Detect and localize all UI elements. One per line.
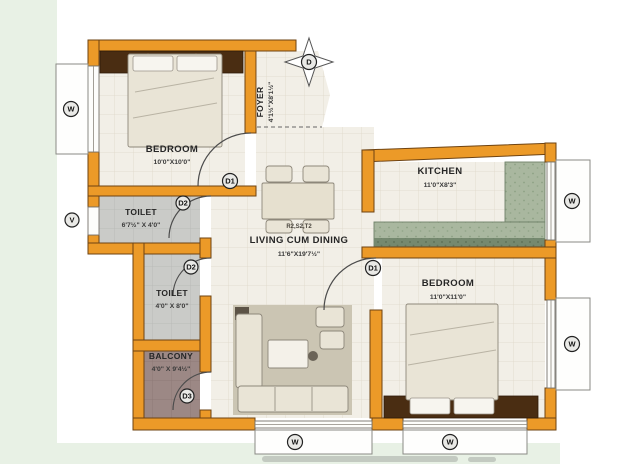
marker-letter: V	[69, 216, 74, 225]
wall-segment	[88, 152, 99, 207]
door-marker-toilet-2: D2	[184, 260, 198, 274]
door-marker-bedroom-1: D1	[223, 174, 238, 189]
wall-segment	[200, 238, 211, 258]
sofa-icon	[238, 386, 348, 412]
wall-segment	[362, 247, 556, 258]
armchair-icon	[316, 307, 344, 327]
counter-front-band	[374, 238, 545, 247]
chair-icon	[303, 166, 329, 182]
dining-table-icon	[262, 183, 334, 219]
main-door-marker: D	[302, 55, 317, 70]
window-box	[255, 430, 372, 454]
armchair-icon	[320, 331, 344, 349]
coffee-table-icon	[268, 340, 308, 368]
window-marker: W	[288, 435, 303, 450]
chair-icon	[266, 166, 292, 182]
label-living: LIVING CUM DINING	[250, 235, 349, 246]
label-toilet-2: TOILET	[156, 288, 188, 298]
window-marker: W	[443, 435, 458, 450]
dims-bedroom-1: 10'0"X10'0"	[154, 159, 191, 166]
label-bedroom-2: BEDROOM	[422, 278, 474, 289]
floor-plan: W W W W W V D D1	[0, 0, 644, 464]
window-box	[403, 430, 527, 454]
window-marker: W	[64, 102, 79, 117]
wall-segment	[200, 410, 211, 418]
door-marker-balcony: D3	[180, 389, 194, 403]
dims-bedroom-2: 11'0"X11'0"	[430, 294, 466, 301]
marker-letter: W	[568, 197, 576, 206]
counter-right	[505, 162, 545, 222]
pillow-icon	[410, 398, 450, 414]
dims-balcony: 4'0" X 9'4½"	[152, 365, 191, 373]
wall-segment	[88, 243, 211, 254]
marker-letter: W	[291, 438, 299, 447]
wall-segment	[372, 418, 403, 430]
wall-segment	[527, 418, 556, 430]
window-marker: W	[565, 194, 580, 209]
cutoff-caption-smudge	[468, 457, 496, 462]
pillow-icon	[177, 56, 217, 71]
door-marker-bedroom-2: D1	[366, 261, 381, 276]
label-foyer: FOYER	[255, 87, 265, 118]
door-marker-toilet-1: D2	[176, 196, 190, 210]
label-balcony: BALCONY	[149, 351, 193, 361]
pillow-icon	[454, 398, 494, 414]
marker-letter: D3	[182, 392, 192, 401]
wall-segment	[88, 40, 296, 51]
label-toilet-1: TOILET	[125, 207, 157, 217]
wall-segment	[545, 143, 556, 162]
label-kitchen: KITCHEN	[417, 166, 462, 177]
marker-letter: D1	[368, 264, 378, 273]
window-marker: W	[565, 337, 580, 352]
dims-kitchen: 11'0"X8'3"	[424, 182, 457, 189]
pillow-icon	[133, 56, 173, 71]
dims-foyer: 4'1½"X8'1½"	[267, 82, 275, 123]
wall-segment	[133, 243, 144, 430]
dims-toilet-2: 4'0" X 8'0"	[155, 303, 188, 310]
wall-segment	[200, 296, 211, 372]
ventilator-glazing	[88, 207, 99, 235]
ventilator-marker: V	[65, 213, 79, 227]
marker-letter: W	[446, 438, 454, 447]
stool-icon	[308, 351, 318, 361]
marker-letter: D2	[178, 199, 188, 208]
wall-segment	[133, 418, 255, 430]
marker-letter: D	[306, 58, 312, 67]
floorplan-page: W W W W W V D D1	[0, 0, 644, 464]
wall-segment	[133, 340, 211, 351]
label-bedroom-1: BEDROOM	[146, 144, 198, 155]
marker-letter: D1	[225, 177, 235, 186]
marker-letter: W	[568, 340, 576, 349]
scan-tint-left	[0, 0, 57, 464]
wall-segment	[362, 150, 374, 212]
floor-balcony	[144, 351, 200, 418]
sofa-icon	[236, 314, 262, 388]
marker-letter: D2	[186, 263, 196, 272]
wall-segment	[88, 40, 99, 66]
cutoff-caption-smudge	[262, 456, 458, 462]
furniture-code: R2,S2,T2	[286, 224, 312, 230]
dims-living: 11'6"X19'7½"	[278, 250, 320, 258]
dims-toilet-1: 6'7½" X 4'0"	[122, 221, 161, 229]
wall-segment	[370, 310, 382, 418]
marker-letter: W	[67, 105, 75, 114]
